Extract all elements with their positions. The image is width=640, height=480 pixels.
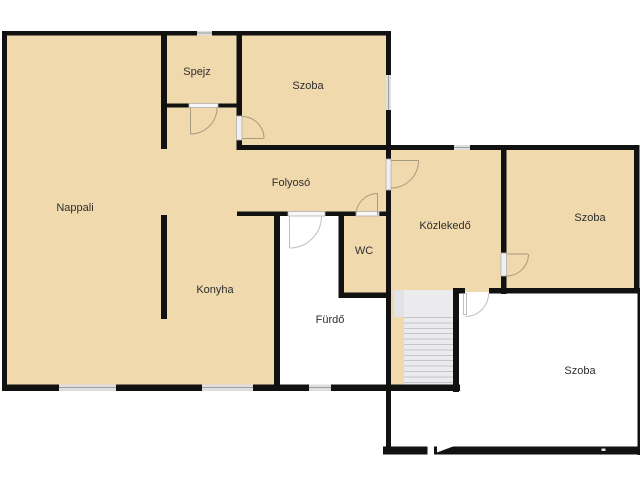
svg-text:Folyosó: Folyosó — [272, 177, 311, 189]
svg-text:WC: WC — [355, 245, 373, 257]
svg-text:Nappali: Nappali — [56, 202, 93, 214]
svg-text:Fürdő: Fürdő — [316, 314, 345, 326]
svg-text:Szoba: Szoba — [574, 212, 606, 224]
svg-text:Spejz: Spejz — [183, 66, 211, 78]
svg-text:Szoba: Szoba — [564, 365, 596, 377]
svg-text:Konyha: Konyha — [196, 284, 234, 296]
svg-text:Szoba: Szoba — [292, 80, 324, 92]
svg-text:Közlekedő: Közlekedő — [419, 220, 470, 232]
